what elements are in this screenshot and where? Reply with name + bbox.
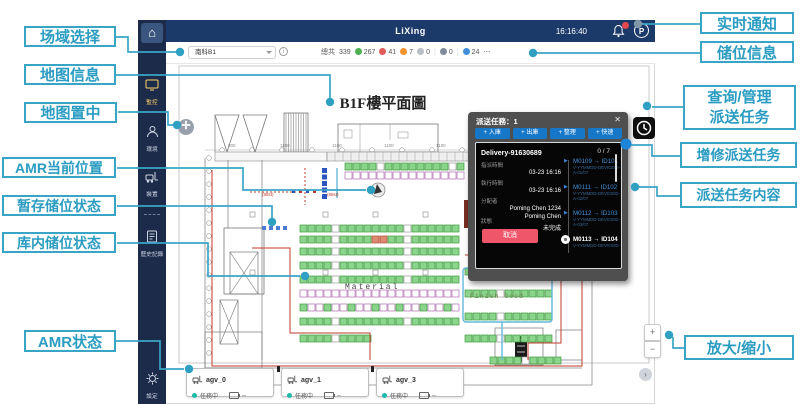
rack-cell — [433, 172, 440, 179]
rack-cell — [428, 236, 435, 243]
forklift-icon — [287, 375, 298, 384]
rack-cell — [417, 172, 424, 179]
svg-text:1100: 1100 — [436, 143, 446, 148]
agv-name: agv_0 — [206, 377, 226, 384]
status-dot-red — [379, 48, 386, 55]
forklift-icon — [382, 375, 393, 384]
rack-cell — [538, 357, 545, 364]
rack-cell — [465, 313, 472, 320]
rack-cell — [441, 172, 448, 179]
play-icon: ▶ — [564, 210, 568, 216]
rack-cell — [332, 290, 339, 297]
rack-cell — [529, 335, 536, 342]
rack-cell — [444, 290, 451, 297]
callout-query-manage-tasks: 查询/管理派送任务 — [683, 85, 796, 130]
rack-cell — [513, 335, 520, 342]
task-progress: 0 / 7 — [597, 148, 610, 155]
callout-amr-status: AMR状态 — [24, 330, 116, 352]
rack-cell — [428, 290, 435, 297]
reorganize-task-button[interactable]: + 整理 — [550, 128, 585, 139]
field-value: Poming Chen 1234 — [510, 206, 561, 212]
rack-cell — [348, 248, 355, 255]
person-icon — [146, 125, 159, 138]
rack-cell — [530, 357, 537, 364]
stats-total-value: 339 — [339, 49, 351, 56]
status-dot — [382, 393, 387, 398]
rack-cell — [348, 225, 355, 232]
sidebar-item-settings[interactable]: 設定 — [138, 372, 166, 400]
rack-cell — [420, 318, 427, 325]
rack-cell — [377, 172, 384, 179]
rack-cell — [404, 236, 411, 243]
battery-icon — [324, 392, 334, 399]
rack-cell — [308, 262, 315, 269]
rack-cell — [361, 163, 368, 170]
rack-cell — [332, 248, 339, 255]
rack-cell — [364, 276, 371, 283]
rack-cell — [412, 236, 419, 243]
stats-total-label: 總共 — [321, 47, 335, 57]
rack-cell — [324, 236, 331, 243]
rack-cell — [324, 248, 331, 255]
rack-cell — [316, 225, 323, 232]
rack-cell — [428, 248, 435, 255]
rack-cell — [449, 163, 456, 170]
rack-cell — [396, 262, 403, 269]
agv-name: agv_1 — [301, 377, 321, 384]
rack-cell — [473, 313, 480, 320]
task-step[interactable]: ▶M0111 → ID102V-YYMMDD-DEVICEID-A-02/07 — [564, 184, 618, 201]
rack-cell — [316, 318, 323, 325]
rack-cell — [537, 335, 544, 342]
rack-cell — [364, 262, 371, 269]
rack-cell — [404, 262, 411, 269]
rack-cell — [436, 225, 443, 232]
rack-cell — [513, 313, 520, 320]
rack-cell — [388, 262, 395, 269]
rack-cell — [444, 304, 451, 311]
rack-cell — [332, 225, 339, 232]
rack-cell — [425, 172, 432, 179]
gear-icon — [146, 372, 159, 385]
rack-cell — [372, 225, 379, 232]
chevron-down-icon — [266, 51, 272, 54]
battery-icon — [419, 392, 429, 399]
rack-cell — [380, 276, 387, 283]
rack-cell — [324, 335, 331, 342]
field-label: 執行時間 — [481, 179, 561, 187]
rack-cell — [300, 290, 307, 297]
sidebar-item-monitor[interactable]: 監控 — [138, 78, 166, 106]
rack-cell — [388, 276, 395, 283]
rack-cell — [436, 262, 443, 269]
rack-cell — [452, 248, 459, 255]
rack-cell — [356, 276, 363, 283]
status-dot-orange — [400, 48, 407, 55]
rack-cell — [545, 290, 552, 297]
rack-cell — [348, 262, 355, 269]
rack-cell — [428, 276, 435, 283]
status-dot-gray — [417, 48, 424, 55]
rack-cell — [316, 236, 323, 243]
rack-cell — [428, 304, 435, 311]
rack-cell — [412, 290, 419, 297]
user-avatar[interactable]: P — [634, 23, 649, 38]
battery-value: -- — [337, 393, 341, 399]
rack-cell — [356, 318, 363, 325]
rack-cell — [412, 318, 419, 325]
rack-cell — [537, 313, 544, 320]
rack-cell — [396, 225, 403, 232]
sidebar-nav: ⌂ 監控 環境 裝置 歷史記錄 設定 — [138, 20, 166, 404]
slot-count-annotation: (88st) — [327, 192, 339, 197]
rack-cell — [393, 172, 400, 179]
rack-cell — [428, 262, 435, 269]
slot-count-annotation: (88st) — [262, 192, 274, 197]
rack-cell — [412, 248, 419, 255]
rack-cell — [348, 304, 355, 311]
sidebar-item-history[interactable]: 歷史記錄 — [138, 230, 166, 258]
rack-cell — [417, 163, 424, 170]
annotated-screenshot: B1F樓平面圖 8001100110011001100 — [0, 0, 800, 404]
close-icon[interactable]: ✕ — [614, 115, 621, 124]
rack-cell — [404, 304, 411, 311]
rack-cell — [457, 163, 464, 170]
rack-cell — [348, 236, 355, 243]
task-history-button[interactable] — [633, 117, 655, 139]
rack-cell — [340, 318, 347, 325]
rack-cell — [420, 276, 427, 283]
callout-map-info: 地图信息 — [24, 64, 116, 85]
delivery-id: Delivery-91630689 — [481, 150, 542, 157]
rack-cell — [364, 318, 371, 325]
zoom-control: + − — [644, 324, 661, 358]
rack-cell — [436, 248, 443, 255]
agv-status: 任務中 — [200, 391, 218, 400]
zoom-in-button[interactable]: + — [644, 324, 661, 341]
outbound-task-button[interactable]: + 出庫 — [513, 128, 548, 139]
rack-cell — [401, 163, 408, 170]
sidebar-item-devices[interactable]: 裝置 — [138, 170, 166, 198]
rack-cell — [385, 163, 392, 170]
rack-cell — [380, 236, 387, 243]
slot-statistics: 總共 339 267 41 7 0 ¦ 0 ¦ 24 ⋯ — [321, 47, 490, 57]
rack-cell — [324, 276, 331, 283]
notification-badge — [622, 22, 629, 29]
cancel-task-button[interactable]: 取消 — [482, 229, 538, 243]
toolbar: 南科B1 i 總共 339 267 41 7 0 ¦ 0 ¦ 24 ⋯ — [166, 42, 655, 64]
delivery-task-panel: 派送任務：1 ✕ + 入庫 + 出庫 + 整理 + 快速 Delivery-91… — [468, 112, 628, 281]
status-dot-blue — [463, 48, 470, 55]
rack-cell — [529, 313, 536, 320]
rack-cell — [300, 248, 307, 255]
rack-cell — [409, 163, 416, 170]
app-header: LiXing 16:16:40 P — [166, 20, 655, 42]
rack-cell — [308, 304, 315, 311]
rack-cell — [420, 225, 427, 232]
rack-cell — [388, 236, 395, 243]
rack-cell — [380, 262, 387, 269]
rack-cell — [521, 335, 528, 342]
rack-cell — [361, 172, 368, 179]
rack-cell — [452, 225, 459, 232]
rack-cell — [345, 163, 352, 170]
rack-cell — [356, 248, 363, 255]
map-center-button[interactable]: ✛ — [178, 119, 194, 135]
rack-cell — [332, 276, 339, 283]
rack-cell — [385, 172, 392, 179]
rack-cell — [388, 304, 395, 311]
rack-cell — [348, 335, 355, 342]
rack-cell — [380, 304, 387, 311]
finish-good-zone-label: Finish Good — [470, 293, 524, 300]
rack-cell — [457, 172, 464, 179]
rack-cell — [505, 335, 512, 342]
agv-status-card[interactable]: agv_3 任務中-- — [376, 368, 464, 397]
rack-cell — [300, 304, 307, 311]
rack-cell — [396, 304, 403, 311]
callout-zoom: 放大/缩小 — [684, 335, 794, 360]
rack-cell — [332, 335, 339, 342]
rack-cell — [420, 304, 427, 311]
svg-text:1100: 1100 — [332, 143, 342, 148]
rack-cell — [356, 304, 363, 311]
rack-cell — [489, 313, 496, 320]
field-selector-dropdown[interactable]: 南科B1 — [188, 46, 276, 59]
rack-cell — [332, 262, 339, 269]
rack-cell — [412, 262, 419, 269]
rack-cell — [465, 335, 472, 342]
pan-right-button[interactable]: › — [639, 368, 652, 381]
rack-cell — [420, 248, 427, 255]
rack-cell — [444, 276, 451, 283]
rack-cell — [537, 290, 544, 297]
rack-cell — [308, 335, 315, 342]
field-value: 03-23 16:16 — [481, 170, 561, 178]
rack-cell — [316, 276, 323, 283]
task-detail-card: Delivery-91630689 指派時間03-23 16:16 執行時間03… — [475, 142, 622, 269]
rack-cell — [372, 276, 379, 283]
rack-cell — [490, 357, 497, 364]
rack-cell — [353, 163, 360, 170]
rack-cell — [364, 304, 371, 311]
battery-icon — [229, 392, 239, 399]
stat-value: 7 — [409, 49, 413, 56]
rack-cell — [481, 335, 488, 342]
rack-cell — [308, 225, 315, 232]
task-step-current[interactable]: M0113 → ID104V-YYMMDD-DEVICEID- — [564, 236, 618, 248]
rack-cell — [345, 172, 352, 179]
field-label: 分配者 — [481, 197, 561, 205]
rack-cell — [348, 276, 355, 283]
rack-cell — [300, 225, 307, 232]
rack-cell — [546, 357, 553, 364]
material-zone-label: Material — [345, 283, 399, 292]
rack-cell — [300, 276, 307, 283]
rack-cell — [404, 276, 411, 283]
field-label: 指派時間 — [481, 161, 561, 169]
agv-name: agv_3 — [396, 377, 416, 384]
rack-cell — [388, 318, 395, 325]
rack-cell — [412, 225, 419, 232]
stat-value: 24 — [472, 49, 480, 56]
rack-cell — [340, 276, 347, 283]
rack-cell — [316, 290, 323, 297]
clock-icon — [633, 117, 655, 139]
document-icon — [146, 230, 158, 243]
play-icon: ▶ — [564, 184, 568, 190]
rack-cell — [308, 248, 315, 255]
rack-cell — [404, 290, 411, 297]
rack-cell — [388, 248, 395, 255]
rack-cell — [308, 290, 315, 297]
stat-value: 0 — [449, 49, 453, 56]
rack-cell — [396, 318, 403, 325]
amr-position-marker[interactable] — [371, 183, 385, 197]
quick-task-button[interactable]: + 快速 — [588, 128, 623, 139]
rack-cell — [436, 290, 443, 297]
rack-cell — [308, 318, 315, 325]
rack-cell — [364, 225, 371, 232]
callout-field-selection: 场域选择 — [24, 26, 116, 47]
task-step[interactable]: ▶M0109 → ID101V-YYMMDD-DEVICEID-A-01/07 — [564, 158, 618, 175]
inbound-task-button[interactable]: + 入庫 — [475, 128, 510, 139]
rack-cell — [340, 262, 347, 269]
rack-cell — [481, 313, 488, 320]
rack-cell — [505, 313, 512, 320]
rack-cell — [372, 248, 379, 255]
rack-cell — [409, 172, 416, 179]
rack-cell — [380, 225, 387, 232]
callout-task-content: 派送任务内容 — [680, 182, 797, 208]
rack-cell — [340, 335, 347, 342]
rack-cell — [529, 290, 536, 297]
rack-cell — [441, 163, 448, 170]
rack-cell — [433, 163, 440, 170]
callout-map-center: 地图置中 — [24, 102, 117, 123]
rack-cell — [380, 318, 387, 325]
forklift-icon — [145, 171, 159, 183]
rack-cell — [300, 236, 307, 243]
rack-cell — [396, 276, 403, 283]
callout-amr-position: AMR当前位置 — [2, 157, 116, 178]
rack-cell — [380, 248, 387, 255]
monitor-icon — [145, 79, 159, 91]
rack-cell — [372, 262, 379, 269]
info-icon[interactable]: i — [279, 47, 288, 56]
rack-cell — [396, 236, 403, 243]
status-dot-green — [355, 48, 362, 55]
status-dot-slate — [440, 48, 447, 55]
callout-add-edit-tasks: 增修派送任务 — [680, 142, 797, 168]
rack-cell — [300, 262, 307, 269]
rack-cell — [348, 318, 355, 325]
rack-cell — [401, 172, 408, 179]
rack-cell — [452, 276, 459, 283]
field-label: 狀態 — [481, 217, 561, 225]
rack-cell — [489, 335, 496, 342]
callout-realtime-notification: 实时通知 — [700, 12, 794, 34]
rack-cell — [324, 262, 331, 269]
rack-cell — [300, 318, 307, 325]
rack-cell — [332, 304, 339, 311]
more-stats[interactable]: ⋯ — [483, 48, 490, 56]
rack-cell — [420, 262, 427, 269]
stat-value: 0 — [426, 49, 430, 56]
battery-value: -- — [242, 393, 246, 399]
rack-cell — [545, 313, 552, 320]
sidebar-item-home[interactable]: ⌂ — [141, 23, 163, 43]
rack-cell — [436, 236, 443, 243]
rack-cell — [425, 163, 432, 170]
rack-cell — [300, 335, 307, 342]
agv-status-card[interactable]: agv_0 任務中-- — [186, 368, 274, 397]
home-icon: ⌂ — [148, 25, 156, 40]
rack-cell — [308, 276, 315, 283]
rack-cell — [364, 236, 371, 243]
rack-cell — [444, 318, 451, 325]
rack-cell — [521, 313, 528, 320]
rack-cell — [444, 225, 451, 232]
status-dot — [287, 393, 292, 398]
rack-cell — [412, 276, 419, 283]
rack-cell — [356, 262, 363, 269]
rack-cell — [364, 248, 371, 255]
forklift-icon — [192, 375, 203, 384]
rack-cell — [372, 304, 379, 311]
rack-cell — [554, 357, 561, 364]
rack-cell — [497, 335, 504, 342]
battery-value: -- — [432, 393, 436, 399]
task-panel-title: 派送任務：1 — [476, 116, 518, 127]
rack-cell — [452, 262, 459, 269]
zoom-out-button[interactable]: − — [644, 341, 661, 358]
rack-cell — [372, 318, 379, 325]
rack-cell — [353, 172, 360, 179]
scrollbar[interactable] — [615, 154, 618, 182]
rack-cell — [452, 236, 459, 243]
task-step[interactable]: ▶M0112 → ID103V-YYMMDD-DEVICEID-A-03/07 — [564, 210, 618, 227]
rack-cell — [444, 236, 451, 243]
rack-cell — [452, 318, 459, 325]
rack-cell — [404, 225, 411, 232]
current-step-icon — [561, 235, 570, 244]
rack-cell — [545, 335, 552, 342]
rack-cell — [444, 262, 451, 269]
play-icon: ▶ — [564, 158, 568, 164]
rack-cell — [332, 318, 339, 325]
sidebar-item-environment[interactable]: 環境 — [138, 125, 166, 153]
rack-cell — [452, 304, 459, 311]
rack-cell — [324, 290, 331, 297]
rack-cell — [356, 236, 363, 243]
rack-cell — [444, 248, 451, 255]
status-dot — [192, 393, 197, 398]
rack-cell — [420, 290, 427, 297]
rack-cell — [449, 172, 456, 179]
field-value: 03-23 16:16 — [481, 188, 561, 196]
rack-cell — [404, 248, 411, 255]
agv-status: 任務中 — [295, 391, 313, 400]
rack-cell — [473, 335, 480, 342]
agv-status: 任務中 — [390, 391, 408, 400]
rack-cell — [393, 163, 400, 170]
rack-cell — [316, 262, 323, 269]
callout-slot-info: 储位信息 — [700, 41, 794, 63]
agv-status-card[interactable]: agv_1 任務中-- — [281, 368, 369, 397]
callout-warehouse-slot-status: 库内储位状态 — [2, 232, 116, 253]
callout-temp-slot-status: 暂存储位状态 — [2, 195, 116, 216]
